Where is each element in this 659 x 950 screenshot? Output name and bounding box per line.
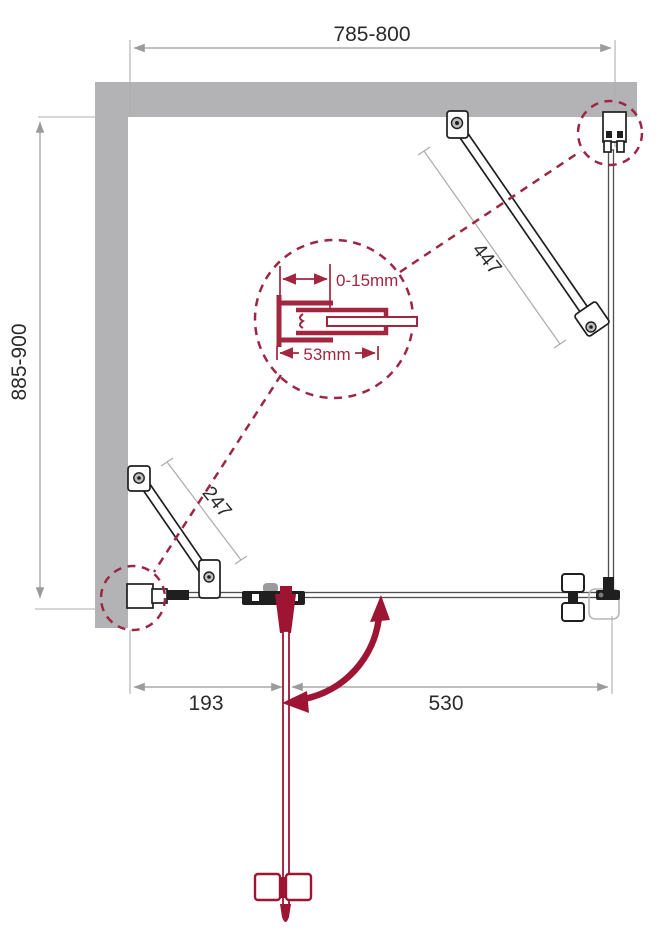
screw-center <box>207 575 211 579</box>
knob-bottom <box>562 603 584 621</box>
hinge-gap <box>252 594 259 601</box>
measure-tick <box>235 556 247 564</box>
dimension-left-height: 885-900 <box>8 117 95 609</box>
profile-gasket <box>300 314 303 328</box>
technical-drawing-page: 785-800 885-900 193 530 <box>0 0 659 950</box>
door-open-position <box>255 586 311 922</box>
door-pivot <box>275 594 296 633</box>
left-height-label: 885-900 <box>8 323 31 400</box>
dimension-bottom: 193 530 <box>130 616 612 715</box>
knob-top <box>562 574 584 592</box>
detail-callouts <box>101 101 642 630</box>
bar-247-label: 247 <box>198 482 236 522</box>
shower-enclosure-diagram: 785-800 885-900 193 530 <box>0 0 659 950</box>
bar-447-label: 447 <box>468 239 506 279</box>
screw-center <box>589 325 593 329</box>
profile-width-label: 53mm <box>303 345 350 364</box>
arrowhead-up <box>370 595 390 622</box>
screw-center <box>137 476 141 480</box>
callout-connector-bottom-left <box>154 375 281 572</box>
door-handle <box>286 874 311 900</box>
door-bottom-tip <box>280 904 291 922</box>
bottom-right-segment-label: 530 <box>428 692 463 715</box>
profile-clip <box>606 131 612 138</box>
profile-foot <box>617 141 624 152</box>
profile-clip <box>617 131 623 138</box>
support-bar-247: 247 <box>128 458 247 598</box>
swing-arrow <box>282 595 390 713</box>
door-glass-open <box>283 631 289 907</box>
corner-screw <box>599 593 604 598</box>
screw-center <box>455 121 459 125</box>
wall-sections <box>95 82 637 628</box>
panel-connector <box>167 590 189 600</box>
fixed-panel-bottom-and-door-closed <box>168 593 610 598</box>
knob-neck <box>568 591 578 604</box>
wall-left <box>95 117 128 628</box>
bottom-left-segment-label: 193 <box>188 692 223 715</box>
fixed-panel-right <box>609 150 614 597</box>
measure-tick <box>161 458 173 466</box>
wall-profile-bottom-left <box>127 584 167 608</box>
support-bar-447: 447 <box>418 111 610 348</box>
door-pivot-cap <box>280 586 292 595</box>
measure-tick <box>554 340 566 348</box>
top-width-label: 785-800 <box>333 23 410 46</box>
wall-top <box>95 82 637 117</box>
door-handle <box>255 874 280 900</box>
profile-foot <box>604 141 611 152</box>
profile-body <box>127 584 153 608</box>
detail-profile-section: 0-15mm 53mm <box>255 240 417 398</box>
adjustment-range-label: 0-15mm <box>336 271 398 290</box>
glass-edge-in-profile <box>327 317 417 326</box>
handle-stem <box>279 877 287 898</box>
measure-tick <box>418 147 430 155</box>
